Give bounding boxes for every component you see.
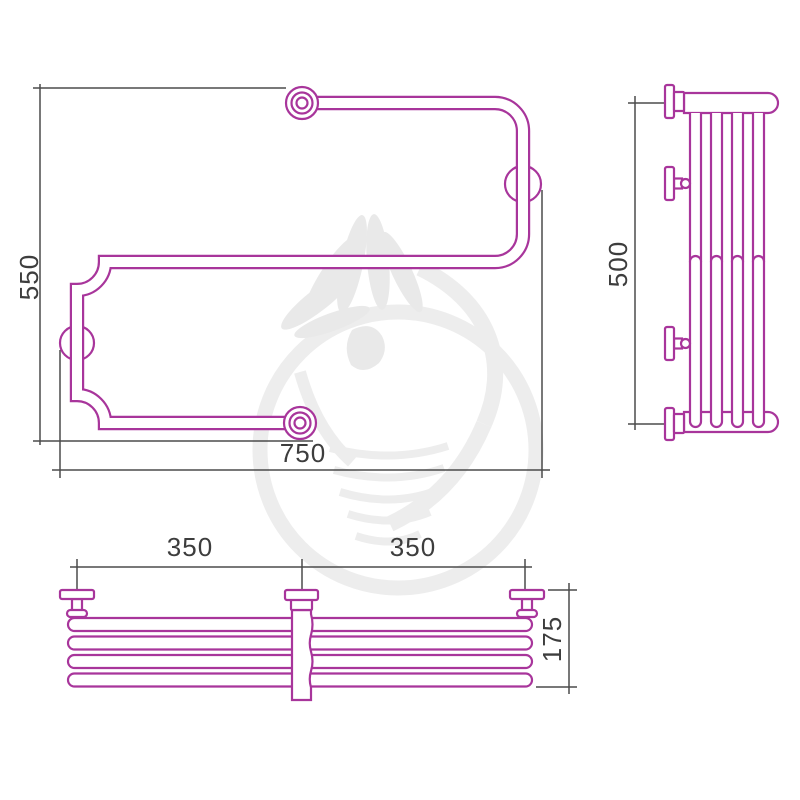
- side-lower-mid-wall-bracket: [665, 327, 690, 360]
- side-view-tubes: [690, 113, 764, 427]
- side-view-dimensions: 500: [603, 96, 667, 430]
- side-top-wall-bracket: [665, 85, 684, 118]
- top-collector: [684, 93, 778, 113]
- technical-drawing-page: 550 750 500: [0, 0, 800, 800]
- front-width-label: 750: [280, 438, 326, 468]
- plan-center-bracket: [285, 590, 318, 610]
- plan-central-column: [292, 610, 313, 700]
- side-view: 500: [603, 85, 778, 440]
- bottom-union-bracket: [284, 407, 316, 439]
- watermark-arm-curve: [420, 268, 495, 424]
- plan-right-bracket: [510, 590, 544, 617]
- top-union-bracket: [286, 87, 318, 119]
- side-upper-mid-wall-bracket: [665, 167, 690, 200]
- plan-view-dimensions: 350 350 175: [70, 532, 577, 694]
- front-height-label: 550: [14, 254, 44, 300]
- plan-right-span-label: 350: [390, 532, 436, 562]
- front-view: 550 750: [14, 84, 550, 478]
- plan-left-span-label: 350: [167, 532, 213, 562]
- technical-drawing-canvas: 550 750 500: [0, 0, 800, 800]
- side-bottom-wall-bracket: [665, 408, 684, 440]
- plan-depth-label: 175: [537, 616, 567, 662]
- side-height-label: 500: [603, 241, 633, 287]
- plan-left-bracket: [60, 590, 94, 617]
- watermark-face: [347, 326, 385, 370]
